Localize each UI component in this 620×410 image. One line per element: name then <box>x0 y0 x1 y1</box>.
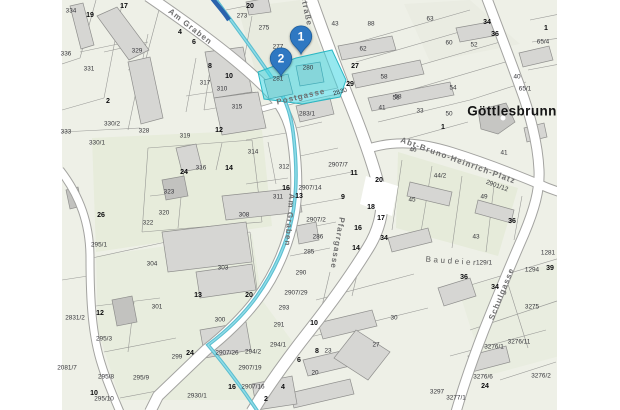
place-name-label: Göttlesbrunn <box>467 104 557 119</box>
cadastral-map: Am GrabenstraßePostgasseAm GrabenPfarrga… <box>0 0 620 410</box>
map-layers <box>60 0 562 410</box>
map-canvas[interactable] <box>0 0 620 410</box>
